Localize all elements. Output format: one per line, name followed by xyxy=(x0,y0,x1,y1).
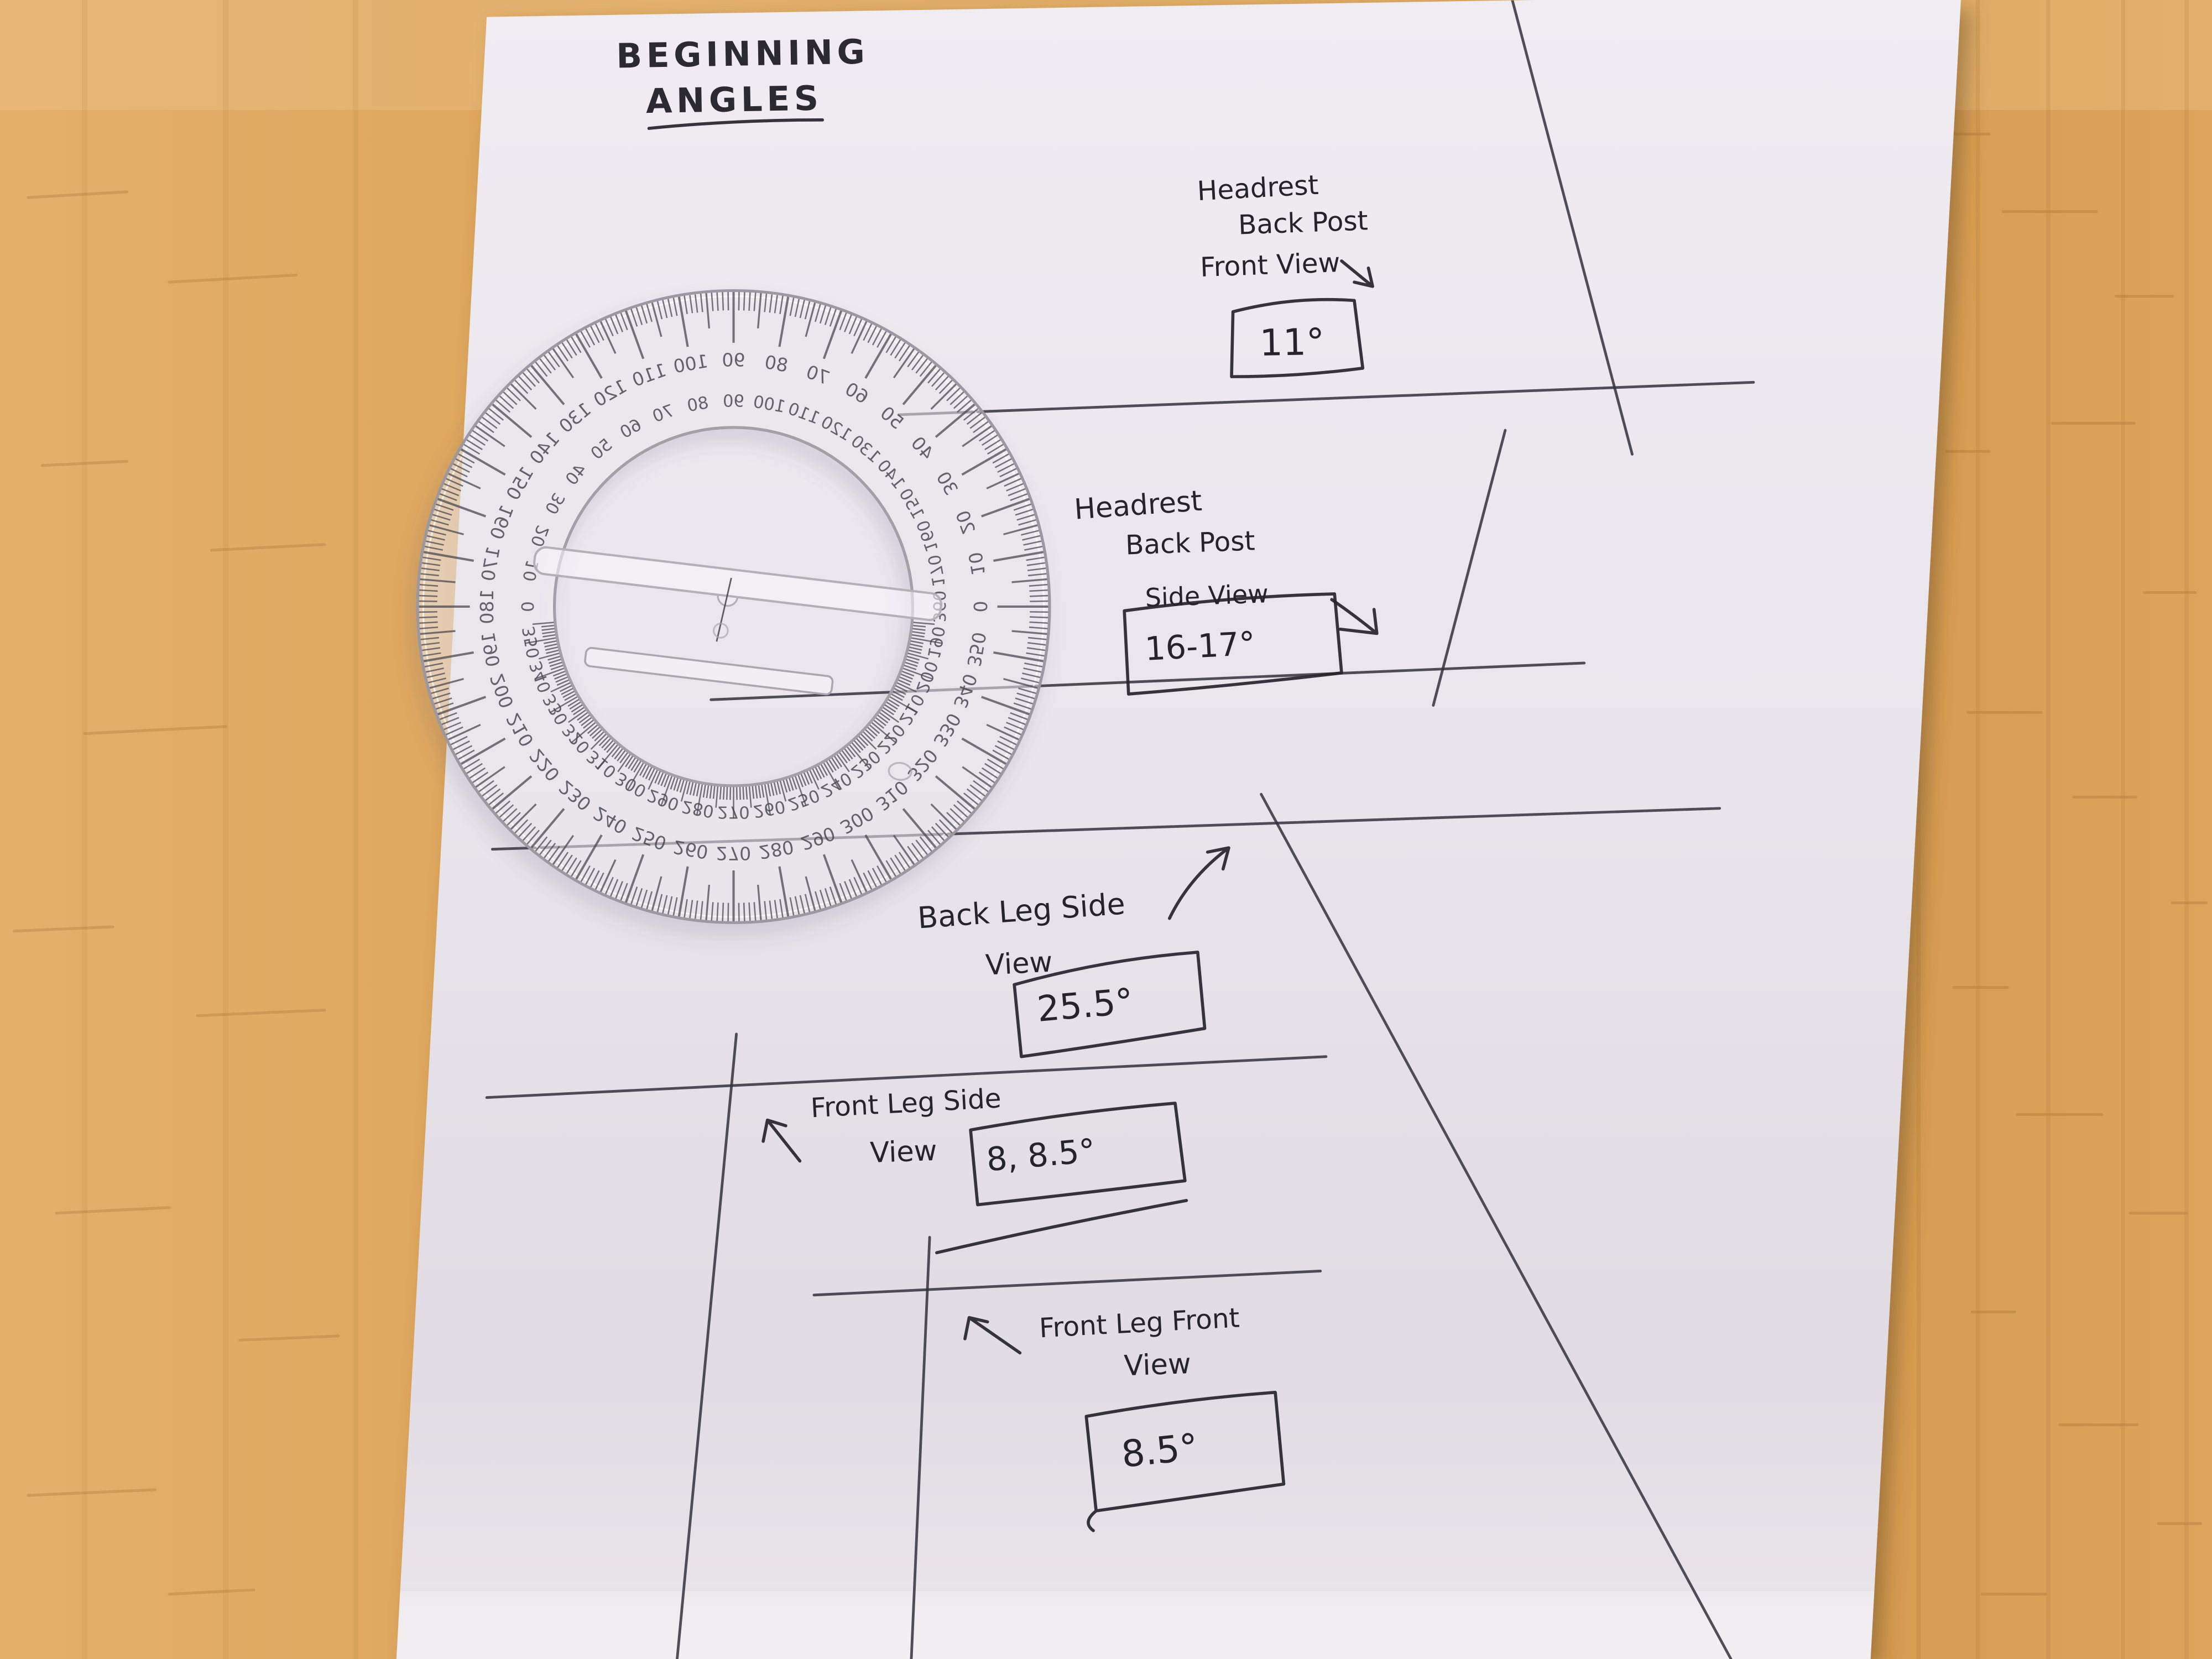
label-headrest-side-2: Back Post xyxy=(1125,525,1255,561)
angle-value-front-leg-front: 8.5° xyxy=(1119,1425,1200,1476)
protractor-degree-label: 90 xyxy=(723,392,744,411)
protractor-degree-label: 180 xyxy=(476,589,498,624)
protractor-degree-label: 0 xyxy=(519,601,538,612)
angle-value-headrest-side: 16-17° xyxy=(1144,624,1256,667)
angle-value-back-leg-side: 25.5° xyxy=(1035,981,1135,1030)
protractor-degree-label: 0 xyxy=(969,601,991,612)
paper-bottom-sheen xyxy=(367,1592,1905,1659)
page-title-line2: ANGLES xyxy=(645,79,823,122)
protractor-degree-label: 80 xyxy=(763,351,790,377)
protractor-degree-label: 90 xyxy=(722,349,745,371)
label-headrest-side-3: Side View xyxy=(1145,578,1269,613)
photo-scene: BEGINNING ANGLES Headrest Back Post Fron… xyxy=(0,0,2212,1659)
label-headrest-front-1: Headrest xyxy=(1197,170,1319,207)
protractor-degree-label: 270 xyxy=(717,802,749,821)
label-front-leg-front-2: View xyxy=(1124,1348,1192,1383)
protractor-degree-label: 10 xyxy=(964,550,989,577)
protractor-degree-label: 270 xyxy=(716,842,751,864)
label-headrest-front-2: Back Post xyxy=(1238,205,1368,241)
angle-value-headrest-front: 11° xyxy=(1259,320,1325,364)
label-headrest-front-3: Front View xyxy=(1199,247,1340,283)
label-front-leg-side-2: View xyxy=(869,1135,937,1170)
page-title-line1: BEGINNING xyxy=(616,32,869,76)
protractor-degree-label: 80 xyxy=(686,393,710,416)
